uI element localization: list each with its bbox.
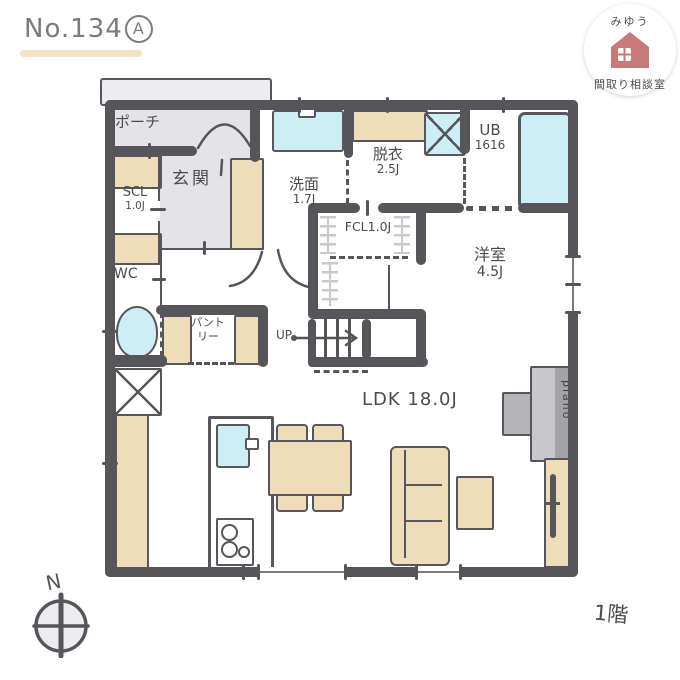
shoe-shelf [112, 155, 162, 189]
stove-burner [238, 546, 250, 558]
wall [308, 309, 426, 319]
room-label-dressing: 脱衣 2.5J [352, 146, 424, 177]
dining-table [268, 440, 352, 496]
wall [105, 100, 578, 110]
partition-line [158, 155, 160, 201]
wall-tick [386, 97, 389, 113]
compass-icon [28, 592, 94, 658]
stairs-up-label: UP [276, 329, 292, 343]
wall-tick [565, 283, 581, 286]
shoe-shelf [112, 233, 162, 265]
tv-stand-tick [546, 502, 560, 505]
partition-line [158, 221, 160, 263]
wall-tick [565, 255, 581, 258]
door-tick [203, 241, 206, 255]
wall [105, 100, 115, 577]
wall [105, 355, 167, 367]
wall [258, 305, 268, 367]
pantry-opening-dashed [188, 362, 234, 365]
partition-line [160, 262, 162, 312]
plan-title: No.134A [24, 14, 153, 44]
piano-stool [502, 392, 532, 436]
wall-tick [415, 564, 418, 580]
wall-tick [102, 462, 118, 465]
tv [550, 474, 556, 538]
stove-burner [221, 524, 238, 541]
refrigerator [114, 368, 162, 416]
entrance-closet [230, 158, 264, 250]
floor-plan-page: No.134A みゆう 間取り相談室 [0, 0, 680, 680]
sofa-back-line [404, 450, 406, 558]
wall [416, 203, 426, 265]
toilet [116, 306, 158, 358]
room-label-family-closet: FCL1.0J [324, 220, 412, 234]
room-label-shoe-closet: SCL 1.0J [112, 186, 158, 213]
wall-tick [102, 330, 118, 333]
room-label-western-room: 洋室 4.5J [436, 246, 544, 280]
wall-tick [459, 564, 462, 580]
room-label-wc: WC [114, 266, 138, 282]
floor-number-label: 1階 [593, 597, 630, 630]
wall-tick [344, 564, 347, 580]
wall-tick [148, 143, 151, 159]
logo-top-text: みゆう [584, 13, 676, 29]
plan-number: No.134 [24, 14, 123, 44]
room-label-washroom: 洗面 1.7J [268, 176, 340, 207]
wall-tick [257, 564, 260, 580]
stairs-boundary-dashed [314, 370, 368, 373]
stair-step-line [336, 319, 339, 357]
wall-tick [298, 97, 301, 113]
dressing-counter [352, 110, 428, 142]
kitchen-cupboard [115, 414, 149, 570]
door-tick [366, 200, 369, 216]
window [418, 567, 462, 577]
plan-variant-badge: A [125, 15, 153, 43]
window [260, 567, 346, 577]
room-label-pantry: パントリー [188, 316, 228, 345]
washroom-door-dashed [346, 160, 349, 204]
bathtub [518, 112, 572, 210]
wall [568, 100, 578, 577]
ottoman-table [456, 476, 494, 530]
stair-step-line [348, 319, 351, 357]
partition-line [262, 162, 264, 250]
room-label-porch: ポーチ [115, 114, 160, 131]
house-icon [608, 30, 652, 70]
wall-tick [242, 564, 245, 580]
room-label-unit-bath: UB 1616 [464, 122, 516, 153]
wc-sliding-door [160, 312, 163, 357]
sofa-cushion-line [404, 484, 442, 486]
window [568, 258, 578, 314]
wall [362, 319, 371, 359]
stair-step-line [324, 319, 327, 357]
partition-line [388, 265, 390, 311]
bath-door-dashed [463, 158, 466, 204]
door-tick [152, 278, 166, 281]
stove-burner [221, 541, 238, 558]
logo-bottom-text: 間取り相談室 [584, 76, 676, 92]
closet-divider-dashed [330, 256, 408, 259]
wall-tick [565, 311, 581, 314]
wall [250, 100, 260, 162]
wall-tick [502, 97, 505, 113]
wall [156, 305, 268, 315]
entrance-hall-door-arc [230, 252, 262, 286]
room-label-entrance: 玄関 [172, 170, 212, 190]
sliding-door-dots [466, 206, 518, 211]
sofa [390, 446, 450, 566]
wall [105, 146, 197, 156]
wall [308, 357, 428, 367]
room-label-ldk: LDK 18.0J [362, 390, 458, 411]
sofa-cushion-line [404, 520, 442, 522]
hanger-pipe [322, 262, 338, 306]
wall [308, 203, 318, 319]
wall [416, 309, 426, 367]
kitchen-faucet [245, 438, 259, 450]
entrance-step-line [158, 248, 254, 250]
wall [518, 203, 578, 213]
company-logo: みゆう 間取り相談室 [584, 4, 676, 96]
title-underline [20, 50, 142, 57]
